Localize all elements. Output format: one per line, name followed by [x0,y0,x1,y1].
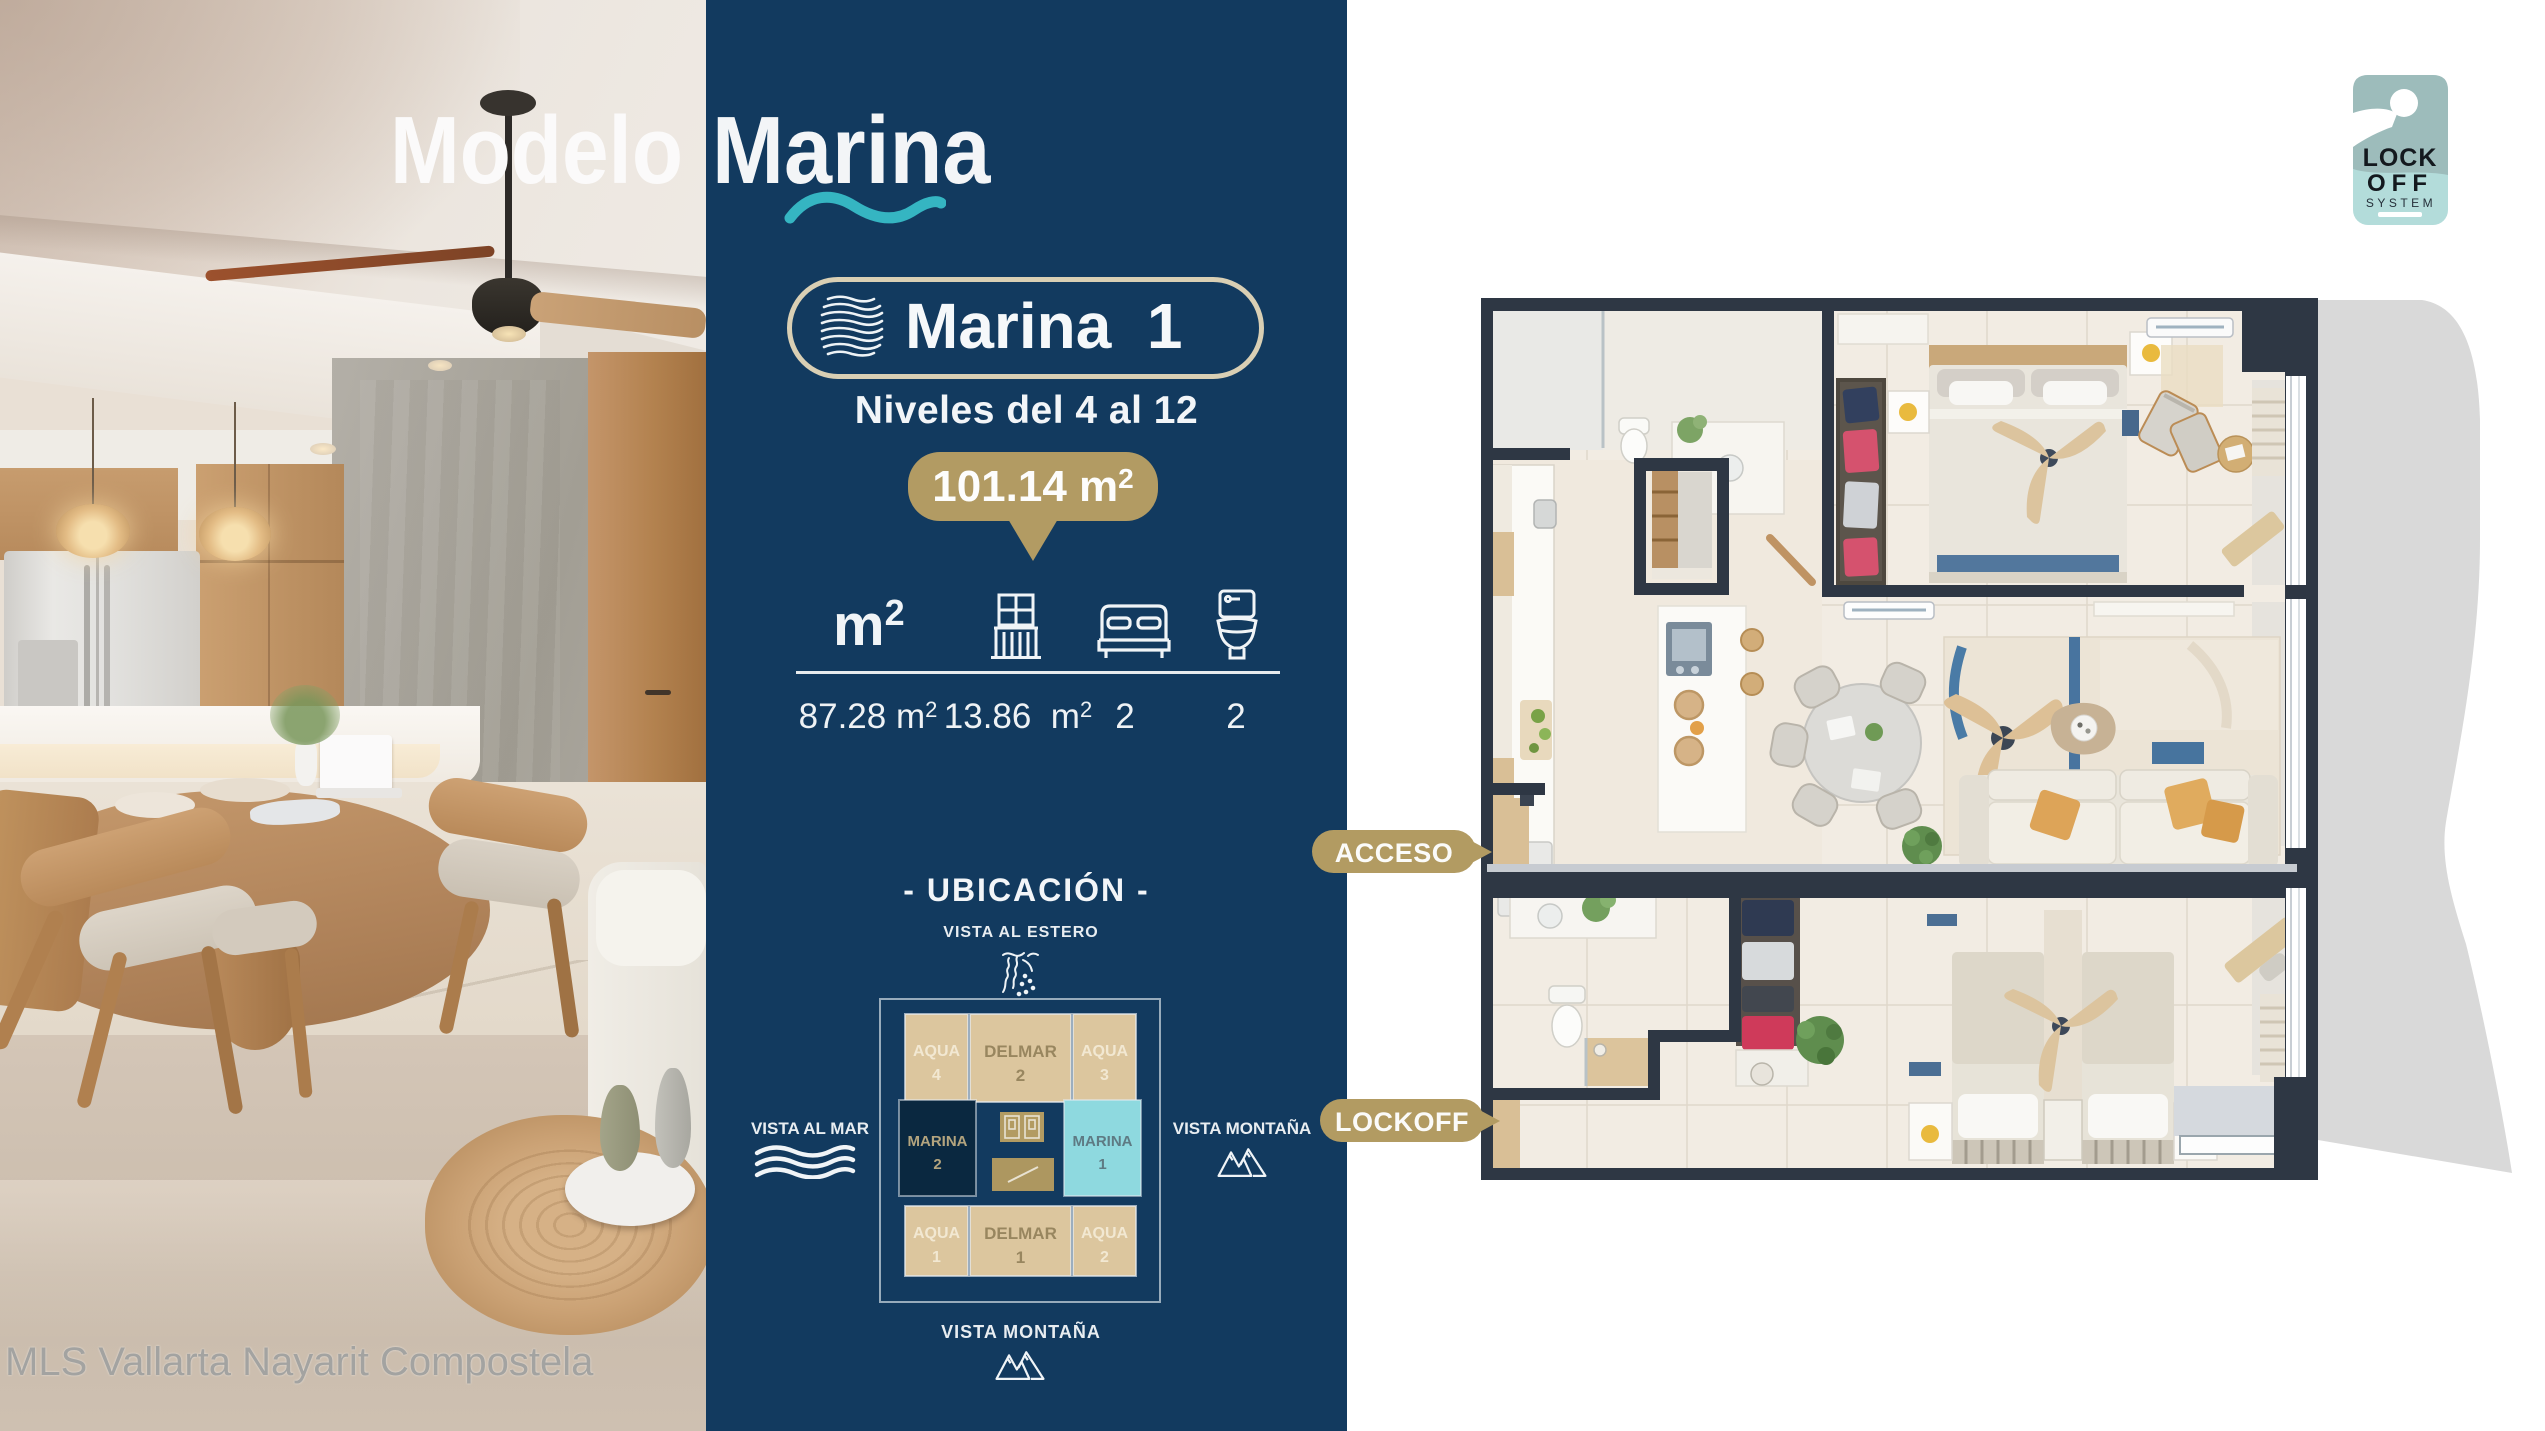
svg-text:OFF: OFF [2367,170,2433,197]
svg-text:LOCK: LOCK [2363,144,2438,172]
svg-text:SYSTEM: SYSTEM [2366,196,2436,210]
